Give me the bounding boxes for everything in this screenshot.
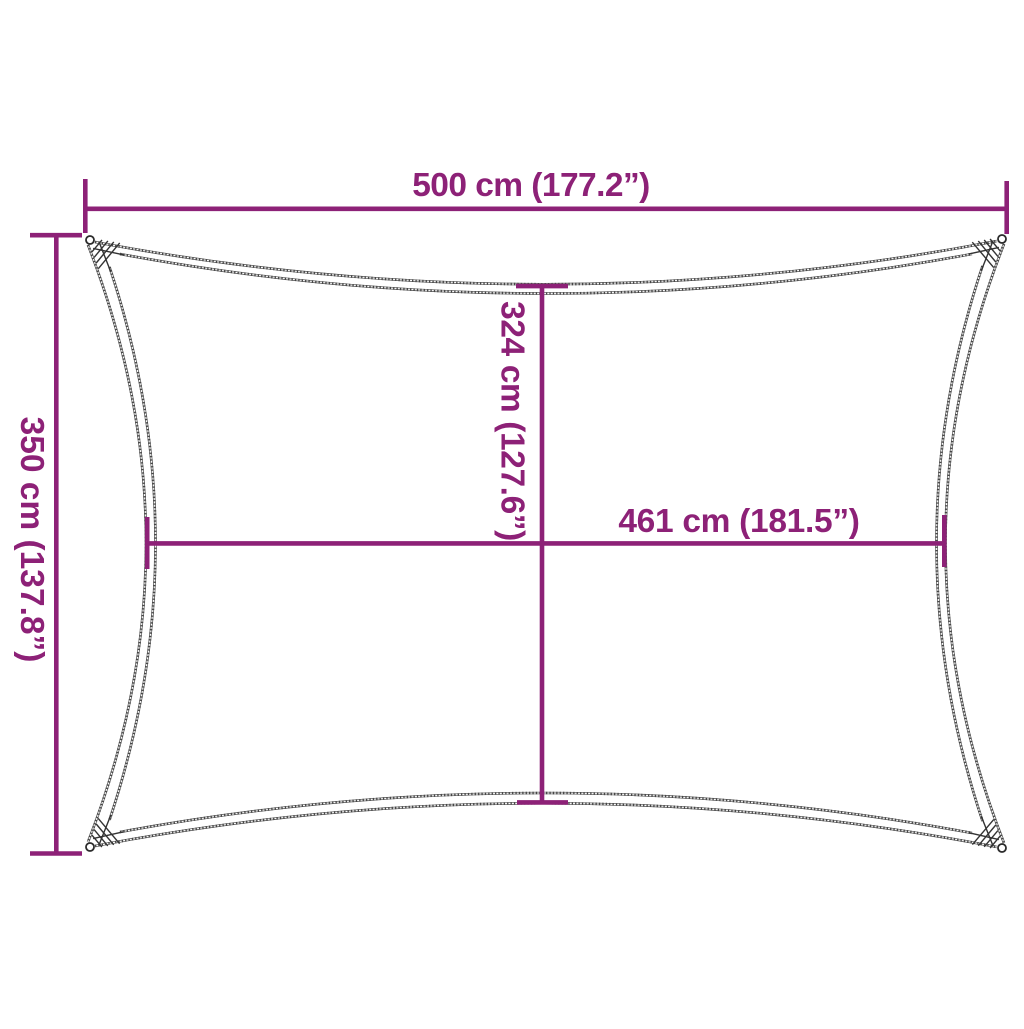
svg-text:350 cm (137.8”): 350 cm (137.8”) [13,417,50,663]
svg-text:461 cm (181.5”): 461 cm (181.5”) [618,503,859,540]
svg-text:324 cm (127.6”): 324 cm (127.6”) [494,301,531,541]
svg-text:500 cm (177.2”): 500 cm (177.2”) [412,167,650,204]
